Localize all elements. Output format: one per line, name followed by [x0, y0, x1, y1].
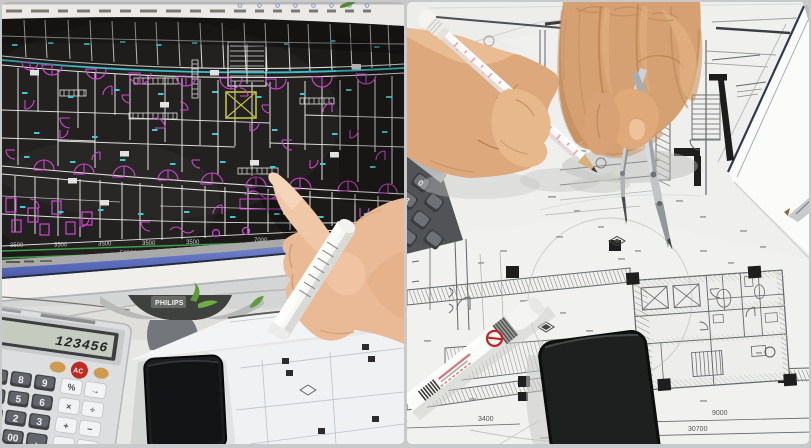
- svg-text:30700: 30700: [688, 426, 708, 433]
- svg-text:→: →: [90, 385, 100, 396]
- svg-text:3500: 3500: [98, 242, 112, 248]
- svg-text:3500: 3500: [142, 241, 156, 247]
- svg-text:3400: 3400: [478, 416, 494, 423]
- svg-text:3500: 3500: [10, 243, 24, 249]
- svg-text:9000: 9000: [712, 410, 728, 417]
- svg-text:PHILIPS: PHILIPS: [155, 300, 184, 307]
- svg-text:00: 00: [6, 432, 19, 445]
- svg-text:3500: 3500: [54, 242, 68, 248]
- svg-text:%: %: [67, 382, 76, 393]
- svg-text:3500: 3500: [186, 240, 200, 246]
- svg-text:AC: AC: [73, 367, 84, 375]
